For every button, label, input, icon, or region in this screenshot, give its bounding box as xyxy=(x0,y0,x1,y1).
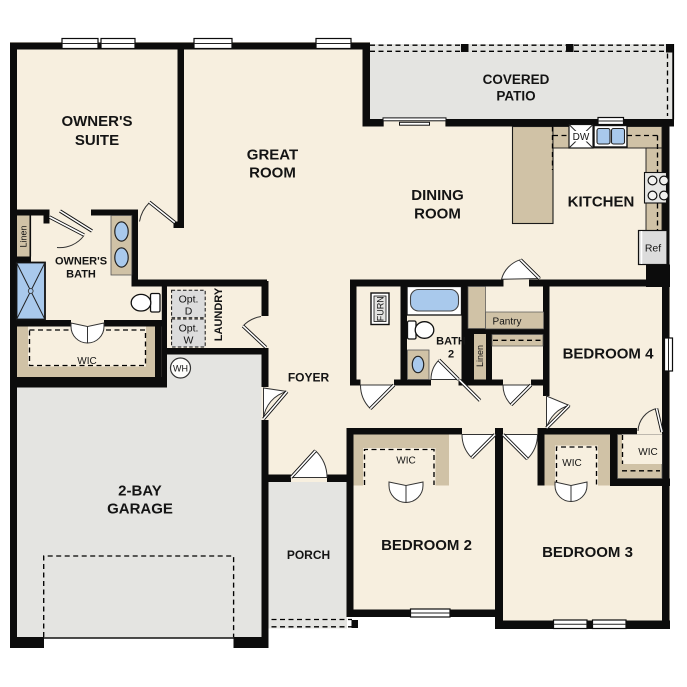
svg-text:Opt.: Opt. xyxy=(179,323,199,335)
svg-text:COVERED: COVERED xyxy=(483,72,550,87)
svg-text:2: 2 xyxy=(448,349,454,361)
svg-text:WH: WH xyxy=(173,363,188,373)
svg-text:PORCH: PORCH xyxy=(287,548,330,562)
svg-text:D: D xyxy=(185,306,193,318)
svg-text:BATH: BATH xyxy=(66,269,96,281)
svg-text:Linen: Linen xyxy=(475,345,485,367)
svg-text:FURN: FURN xyxy=(375,296,385,321)
svg-text:Linen: Linen xyxy=(19,225,29,247)
svg-text:GREAT: GREAT xyxy=(247,147,298,164)
svg-text:WIC: WIC xyxy=(77,356,96,367)
svg-text:2-BAY: 2-BAY xyxy=(118,483,162,500)
svg-text:WIC: WIC xyxy=(562,458,581,469)
svg-text:BATH: BATH xyxy=(436,336,466,348)
svg-text:BEDROOM 4: BEDROOM 4 xyxy=(563,346,655,363)
svg-text:FOYER: FOYER xyxy=(288,371,330,385)
svg-text:W: W xyxy=(184,335,194,347)
svg-text:WIC: WIC xyxy=(638,447,657,458)
svg-text:DINING: DINING xyxy=(411,187,464,204)
svg-text:Opt.: Opt. xyxy=(179,294,199,306)
svg-text:Ref: Ref xyxy=(645,243,661,255)
svg-text:KITCHEN: KITCHEN xyxy=(568,194,635,211)
svg-text:ROOM: ROOM xyxy=(414,206,461,223)
svg-text:OWNER'S: OWNER'S xyxy=(55,256,107,268)
svg-text:GARAGE: GARAGE xyxy=(107,501,173,518)
svg-text:DW: DW xyxy=(573,132,590,143)
svg-text:SUITE: SUITE xyxy=(75,132,119,149)
svg-text:PATIO: PATIO xyxy=(496,89,535,104)
svg-text:LAUNDRY: LAUNDRY xyxy=(213,287,225,341)
svg-text:WIC: WIC xyxy=(396,456,415,467)
svg-text:Pantry: Pantry xyxy=(493,317,522,328)
svg-text:ROOM: ROOM xyxy=(249,165,296,182)
svg-text:BEDROOM 3: BEDROOM 3 xyxy=(542,544,633,561)
svg-text:BEDROOM 2: BEDROOM 2 xyxy=(381,537,472,554)
svg-text:OWNER'S: OWNER'S xyxy=(61,113,132,130)
